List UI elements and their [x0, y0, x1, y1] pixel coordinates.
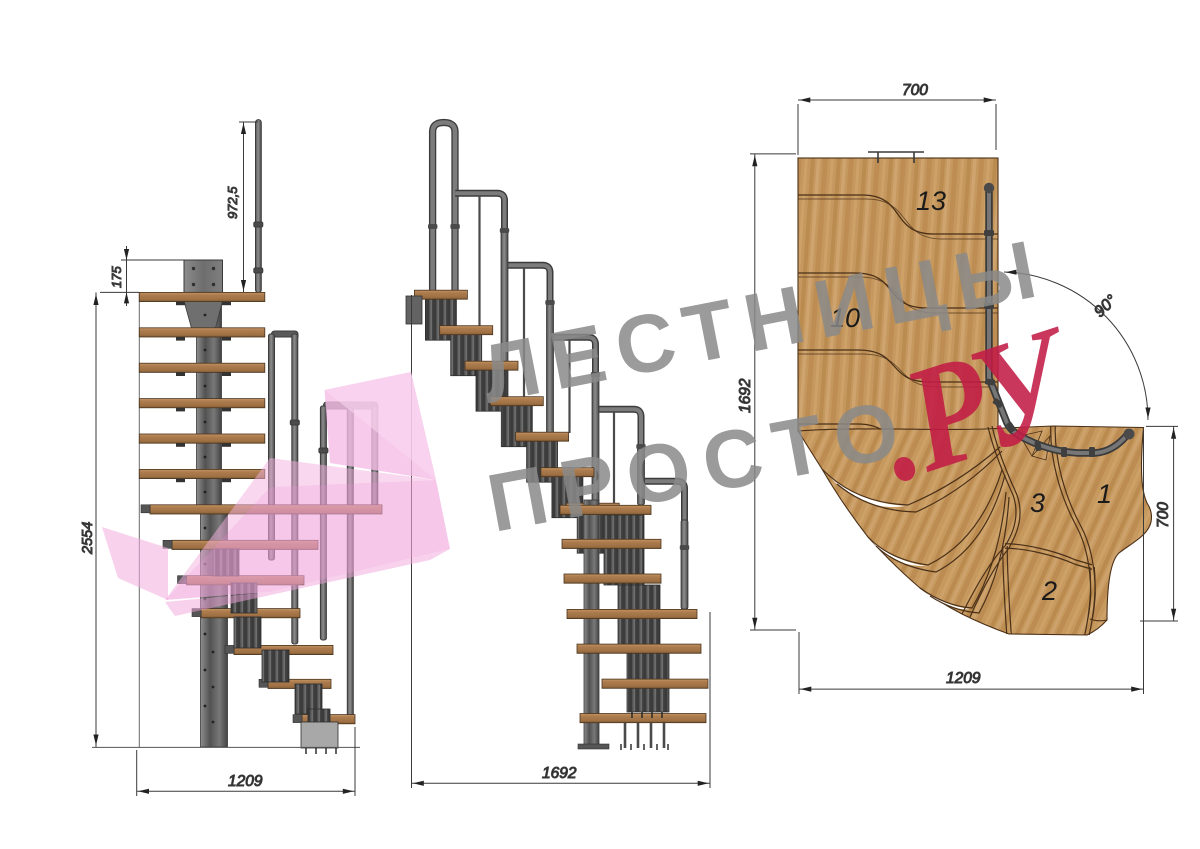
- svg-text:1: 1: [1097, 479, 1112, 509]
- svg-text:972,5: 972,5: [225, 186, 240, 219]
- svg-text:3: 3: [1030, 488, 1045, 518]
- svg-text:1692: 1692: [737, 378, 754, 413]
- svg-text:175: 175: [109, 266, 124, 288]
- svg-text:1209: 1209: [946, 670, 981, 687]
- svg-text:700: 700: [902, 82, 928, 99]
- svg-text:700: 700: [1155, 502, 1172, 528]
- svg-text:13: 13: [916, 186, 946, 216]
- svg-text:2554: 2554: [80, 522, 96, 555]
- svg-text:1692: 1692: [542, 765, 577, 782]
- svg-text:2: 2: [1041, 576, 1057, 606]
- svg-text:1209: 1209: [228, 773, 263, 790]
